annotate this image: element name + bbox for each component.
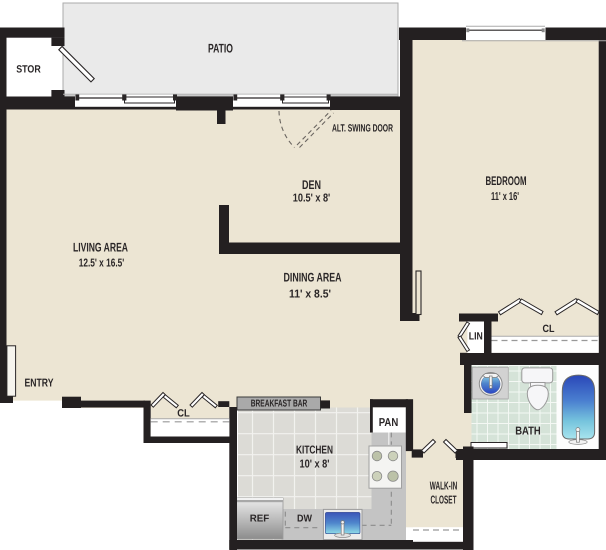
svg-text:11' x 16': 11' x 16' xyxy=(491,191,519,203)
svg-text:LIVING AREA: LIVING AREA xyxy=(73,241,128,255)
svg-text:CL: CL xyxy=(177,407,190,419)
svg-text:PAN: PAN xyxy=(379,417,399,429)
svg-text:11' x 8.5': 11' x 8.5' xyxy=(289,289,331,301)
svg-text:BATH: BATH xyxy=(515,426,541,438)
svg-text:10' x 8': 10' x 8' xyxy=(300,459,330,471)
svg-text:BREAKFAST BAR: BREAKFAST BAR xyxy=(251,399,308,410)
svg-text:LIN: LIN xyxy=(469,331,483,343)
svg-text:ALT. SWING DOOR: ALT. SWING DOOR xyxy=(332,123,393,135)
svg-text:WALK-IN: WALK-IN xyxy=(430,481,458,493)
svg-text:12.5' x 16.5': 12.5' x 16.5' xyxy=(79,258,125,270)
svg-text:REF: REF xyxy=(250,514,270,525)
svg-text:DEN: DEN xyxy=(302,178,321,192)
svg-text:KITCHEN: KITCHEN xyxy=(296,445,333,457)
svg-text:BEDROOM: BEDROOM xyxy=(486,174,527,188)
svg-text:CLOSET: CLOSET xyxy=(431,495,457,507)
svg-text:DW: DW xyxy=(297,514,312,525)
svg-text:STOR: STOR xyxy=(16,64,41,76)
svg-text:ENTRY: ENTRY xyxy=(25,378,54,390)
svg-text:DINING AREA: DINING AREA xyxy=(284,271,342,285)
svg-text:10.5' x 8': 10.5' x 8' xyxy=(293,193,331,205)
svg-text:CL: CL xyxy=(543,323,555,335)
svg-text:PATIO: PATIO xyxy=(208,42,233,56)
